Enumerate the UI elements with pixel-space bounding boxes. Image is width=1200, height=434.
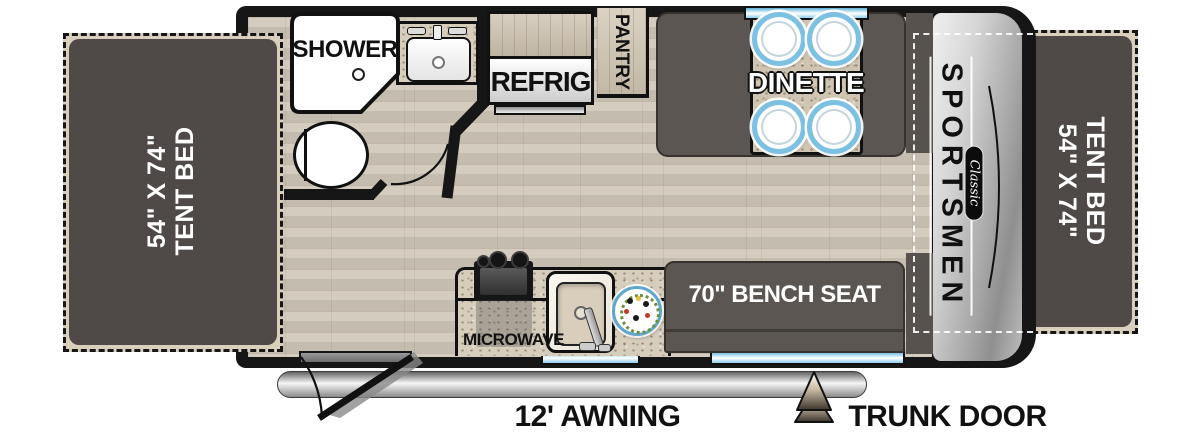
tomato <box>645 313 650 318</box>
refrigerator: REFRIG <box>487 56 594 105</box>
tomato <box>624 309 629 314</box>
stove-top <box>480 268 527 295</box>
bed-size-text: 54" X 74" <box>143 127 171 256</box>
tent-bed-left-label: 54" X 74" TENT BED <box>171 191 300 247</box>
toilet-tank-line <box>304 129 307 181</box>
toilet <box>293 121 369 189</box>
pepper <box>636 296 641 301</box>
bed-name-text: TENT BED <box>171 127 199 256</box>
dinette-label: DINETTE <box>706 67 906 99</box>
olive <box>627 298 633 304</box>
soap-dish <box>598 344 611 352</box>
bench-label: 70" BENCH SEAT <box>666 281 903 309</box>
pantry-label: PANTRY <box>621 52 697 74</box>
awning-bar <box>277 371 867 398</box>
fridge-cabinet <box>487 11 594 58</box>
bath-sink-drain <box>432 56 445 69</box>
floorplan-canvas: SPORTSMEN Classic 54" X 74" TENT BED TEN… <box>0 0 1200 434</box>
trunk-door-label: TRUNK DOOR <box>840 400 1055 434</box>
faucet-handle-left <box>407 27 426 35</box>
dinette-plate <box>807 100 861 154</box>
bed-size-text: 54" X 74" <box>1053 117 1081 246</box>
microwave-label: MICROWAVE <box>456 330 571 350</box>
bench-seam <box>666 329 903 332</box>
bed-name-text: TENT BED <box>1081 117 1109 246</box>
dinette-plate <box>752 12 806 66</box>
faucet-handle-right <box>448 27 467 35</box>
dinette-plate <box>752 100 806 154</box>
faucet-base <box>579 342 596 351</box>
shower-drain <box>352 68 365 81</box>
refrigerator-vent <box>494 105 586 115</box>
stove-knob <box>511 251 529 269</box>
refrigerator-label: REFRIG <box>490 66 591 98</box>
olive <box>643 301 649 307</box>
faucet-spout <box>433 25 442 40</box>
entry-step <box>299 351 412 364</box>
olive <box>633 315 639 321</box>
tent-bed-right-label: TENT BED 54" X 74" <box>1081 181 1200 237</box>
stove-knob <box>489 251 507 269</box>
stove-knob <box>477 255 490 268</box>
shower-label: SHOWER <box>292 36 398 64</box>
decor-plate <box>612 286 662 336</box>
bed-fold-line-overlay <box>913 33 1033 333</box>
awning-label: 12' AWNING <box>460 400 735 434</box>
bath-vanity <box>396 21 479 85</box>
dinette-plate <box>807 12 861 66</box>
